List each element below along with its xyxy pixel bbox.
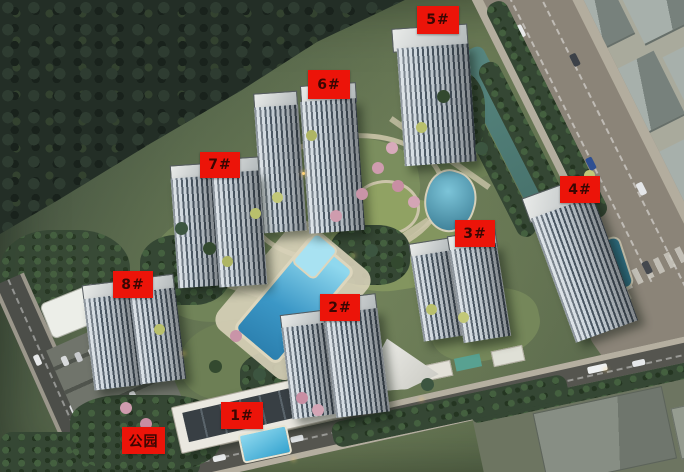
- building-8b-facade: [129, 287, 186, 384]
- building-2b-facade: [324, 308, 390, 418]
- accent-trees: [250, 208, 261, 219]
- parked-cars: [60, 355, 70, 367]
- cherry-trees: [372, 162, 384, 174]
- building-6b-facade: [300, 98, 365, 234]
- street-lights: [302, 172, 305, 175]
- building-5-facade: [397, 43, 477, 166]
- building-3b-facade: [449, 243, 511, 343]
- building-7-tower-b: [207, 154, 268, 291]
- dark-trees: [175, 222, 188, 235]
- aerial-masterplan-render: 5#6#7#4#3#8#2#1#公园: [0, 0, 684, 472]
- building-6-tower-b: [295, 80, 367, 236]
- building-5-tower: [387, 21, 481, 169]
- building-7b-facade: [211, 170, 267, 287]
